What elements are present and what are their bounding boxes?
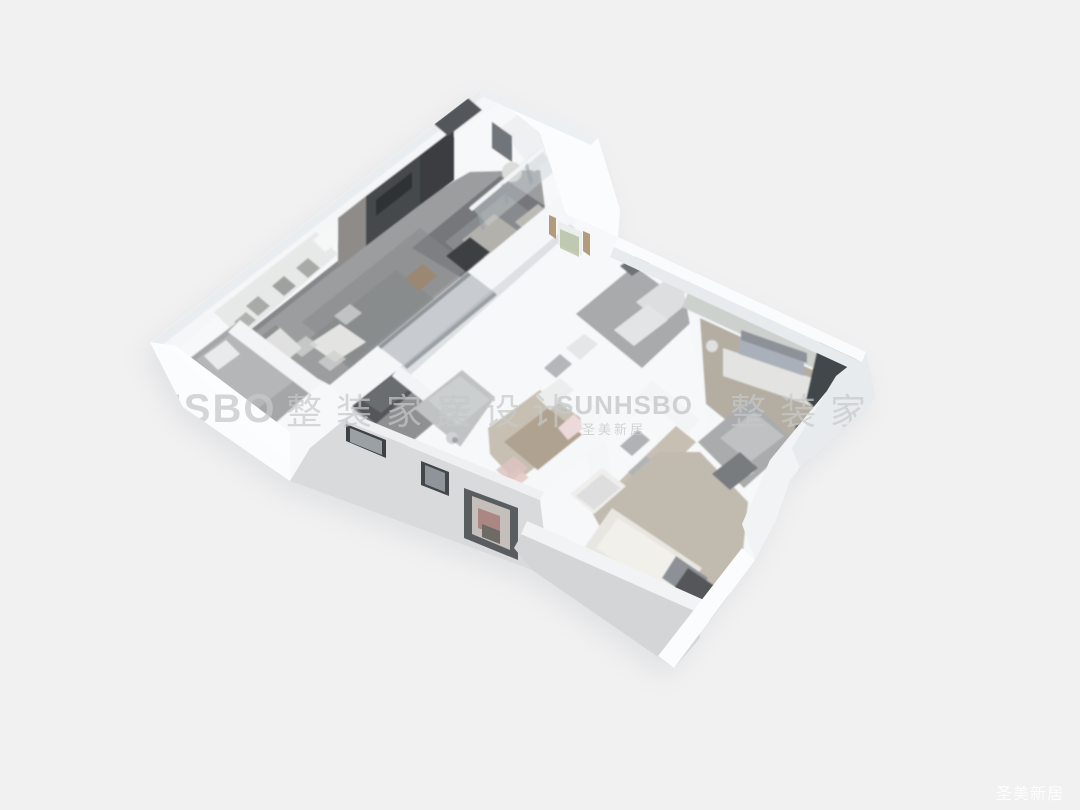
svg-text:圣美新居: 圣美新居 xyxy=(582,422,646,437)
svg-text:SUNHSBO: SUNHSBO xyxy=(556,390,693,420)
svg-text:圣美新居: 圣美新居 xyxy=(996,785,1064,803)
